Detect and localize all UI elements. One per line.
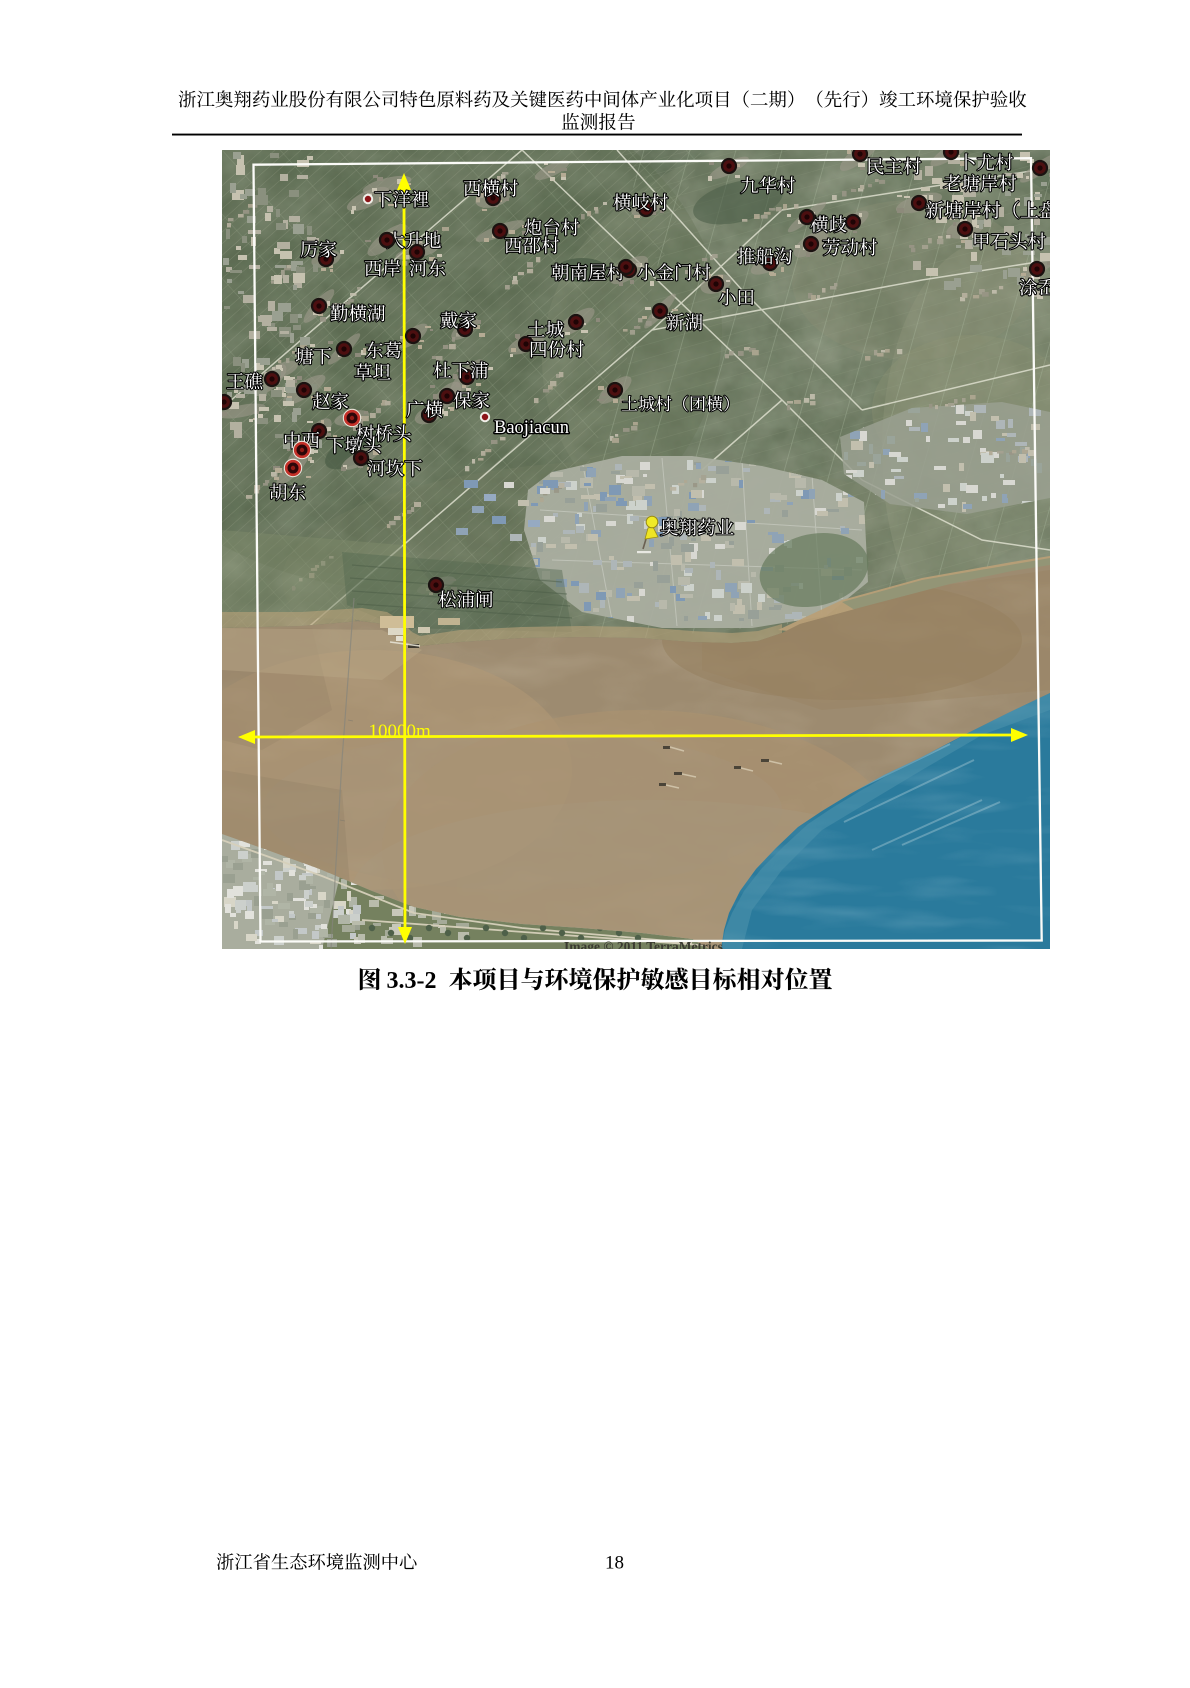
svg-text:3.3-2: 3.3-2 (387, 968, 437, 994)
svg-text:10000m: 10000m (369, 721, 432, 742)
svg-text:Baojiacun: Baojiacun (494, 418, 569, 438)
svg-text:18: 18 (605, 1553, 624, 1574)
